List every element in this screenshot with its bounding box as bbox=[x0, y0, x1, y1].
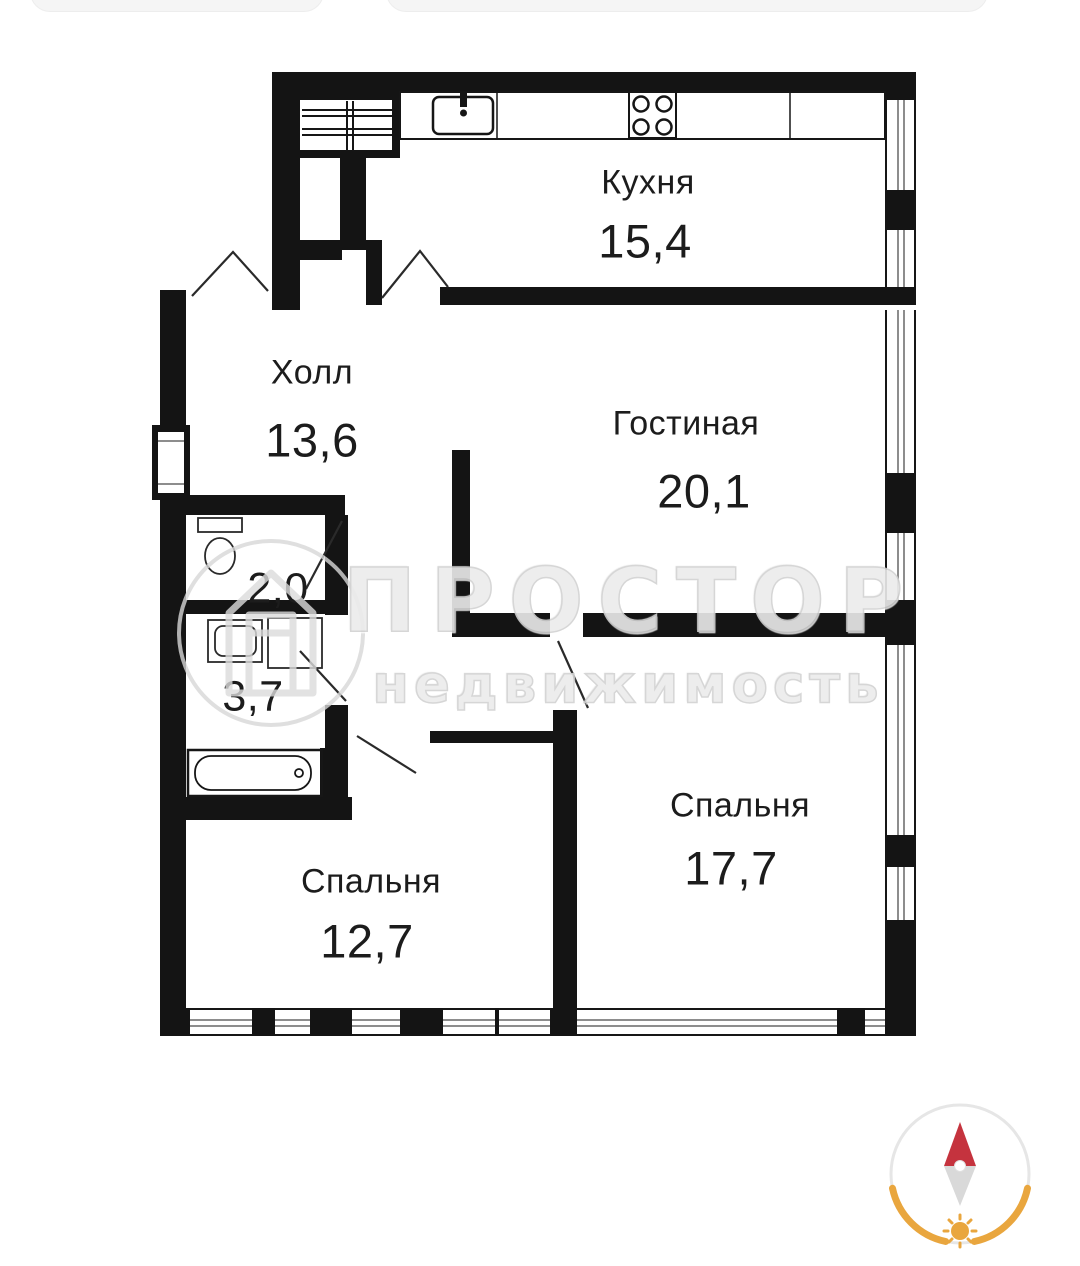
watermark-subtitle: недвижимость bbox=[372, 655, 883, 716]
room-area-kitchen: 15,4 bbox=[598, 214, 691, 269]
room-label-living-room: Гостиная bbox=[613, 405, 760, 444]
bathtub-icon bbox=[188, 750, 322, 796]
watermark-brand: ПРОСТОР bbox=[343, 550, 918, 653]
room-label-bedroom-right: Спальня bbox=[670, 787, 810, 826]
compass-logo-icon bbox=[885, 1100, 1041, 1260]
floor-plan-page: Кухня 15,4 Холл 13,6 Гостиная 20,1 2,0 3… bbox=[0, 0, 1080, 1266]
room-area-bedroom-left: 12,7 bbox=[320, 914, 413, 969]
bedroom-left-door-swing bbox=[357, 736, 416, 773]
kitchen-counter bbox=[400, 92, 885, 139]
kitchen-door-swing bbox=[382, 251, 448, 298]
room-label-hall: Холл bbox=[271, 354, 353, 393]
watermark-logo-icon bbox=[171, 533, 371, 733]
sun-icon bbox=[944, 1215, 976, 1247]
room-label-kitchen: Кухня bbox=[601, 164, 695, 203]
room-area-living-room: 20,1 bbox=[657, 464, 750, 519]
entrance-door-swing bbox=[192, 252, 268, 296]
shaft-pipes bbox=[302, 101, 392, 151]
room-label-bedroom-left: Спальня bbox=[301, 863, 441, 902]
room-area-bedroom-right: 17,7 bbox=[684, 841, 777, 896]
room-area-hall: 13,6 bbox=[265, 413, 358, 468]
